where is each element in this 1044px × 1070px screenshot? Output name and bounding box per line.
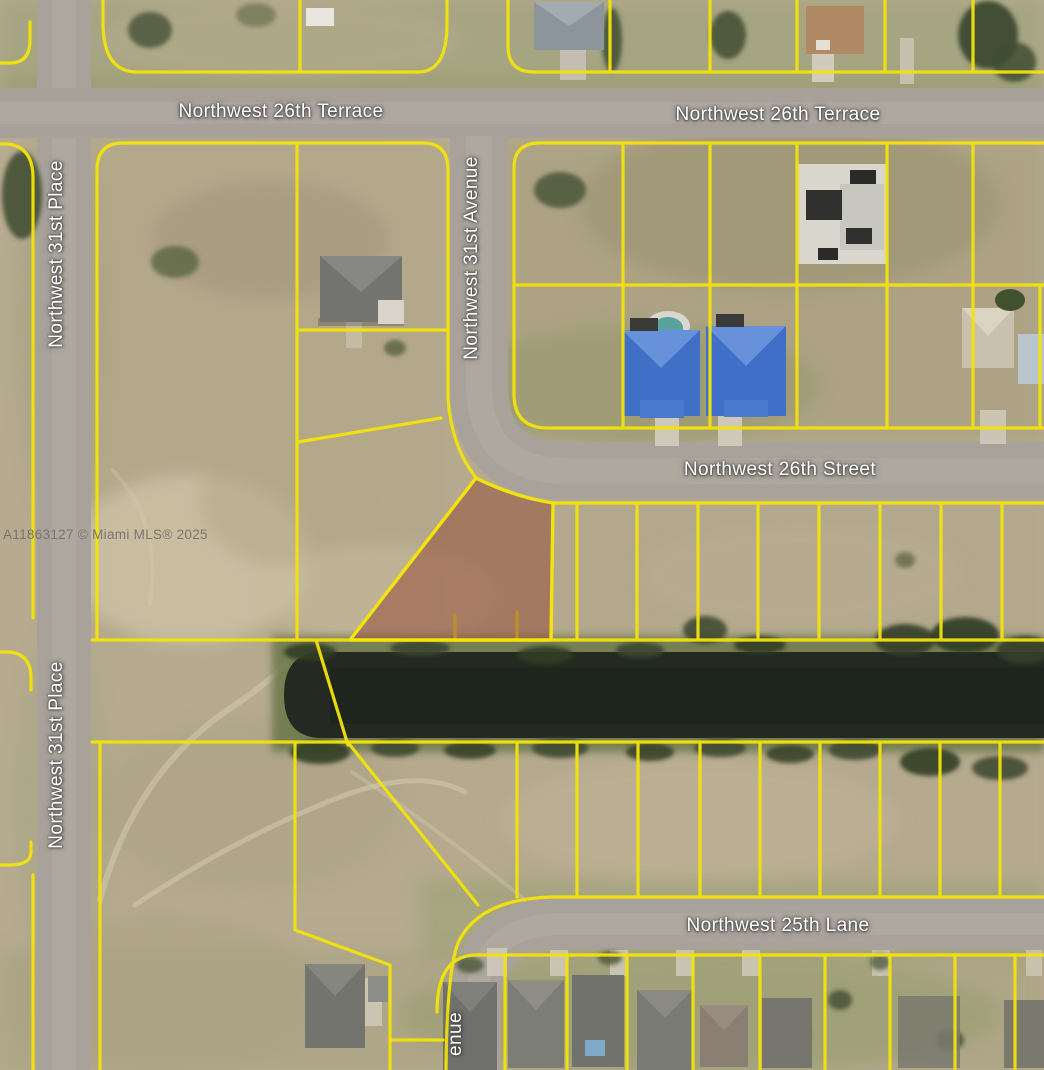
house-blue-roof-2 <box>706 314 786 417</box>
house-gray-roof-upper-left <box>318 256 404 326</box>
map-graphics <box>0 0 1044 1070</box>
house-top-gray <box>534 2 604 50</box>
satellite-parcel-map: Northwest 26th Terrace Northwest 26th Te… <box>0 0 1044 1070</box>
house-top-tan <box>806 6 864 54</box>
house-blue-roof-1 <box>622 311 700 418</box>
construction-site <box>798 164 886 264</box>
shed-top-left <box>306 8 334 26</box>
